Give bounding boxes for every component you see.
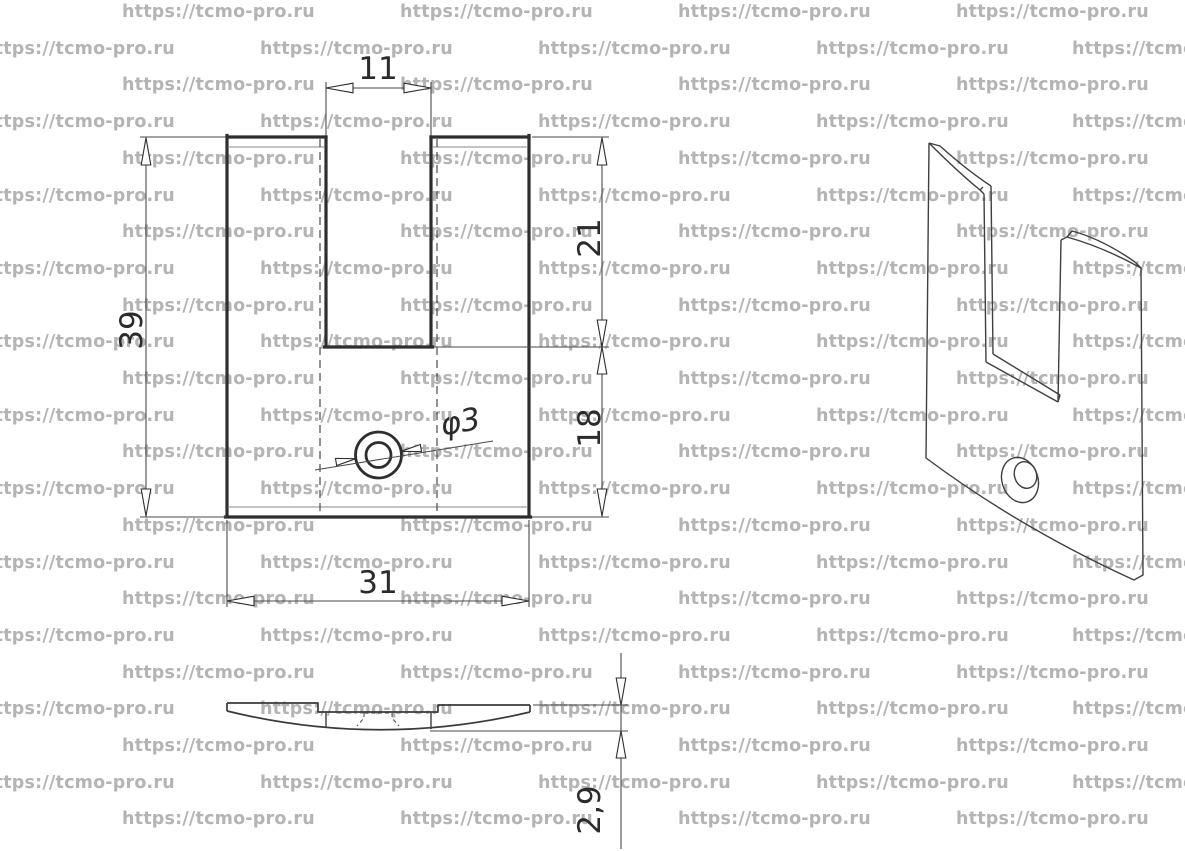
dim-21-arrow-bottom — [597, 320, 607, 347]
dim-39-lines — [140, 137, 226, 517]
dim-39-arrow-top — [141, 138, 151, 165]
dim-29-arrow-top — [616, 678, 626, 705]
dim-31-arrow-left — [227, 596, 254, 606]
dim-overall-width-label: 31 — [358, 565, 397, 601]
dim-18-arrow-top — [597, 347, 607, 374]
iso-hole-ellipse — [1011, 459, 1040, 491]
bottom-view-top-edges — [227, 703, 530, 712]
front-view — [226, 136, 531, 518]
dim-21-arrow-top — [597, 138, 607, 165]
dim-thickness-label: 2,9 — [572, 785, 608, 834]
curvature-edge-lines — [229, 147, 527, 507]
dim-18-arrow-bottom — [597, 489, 607, 516]
iso-right-arm-top — [1061, 231, 1141, 268]
bottom-view-slot-walls — [326, 712, 431, 729]
dim-slot-depth-label: 21 — [572, 218, 608, 257]
isometric-view — [926, 143, 1143, 580]
dim-11-arrow-left — [326, 83, 353, 93]
dim-31-arrow-right — [502, 596, 529, 606]
countersink-circle — [356, 432, 402, 478]
bottom-view-hidden-hole — [357, 713, 399, 726]
technical-drawing: 11 39 21 18 31 φ3 2,9 — [0, 0, 1185, 851]
bottom-view — [227, 703, 530, 730]
iso-outer-contour — [926, 143, 1143, 580]
dim-overall-height-label: 39 — [114, 310, 150, 349]
dim-slot-width-label: 11 — [358, 51, 397, 87]
bottom-view-curve — [227, 711, 530, 730]
hole-leader-line — [315, 441, 493, 470]
drawing-page: https://tcmo-pro.ruhttps://tcmo-pro.ruht… — [0, 0, 1185, 851]
dim-29-arrow-bottom — [616, 731, 626, 758]
dim-below-slot-label: 18 — [572, 408, 608, 447]
hole-circle — [366, 443, 391, 468]
dim-39-arrow-bottom — [141, 489, 151, 516]
dim-11-arrow-right — [404, 83, 431, 93]
iso-slot-edges — [984, 186, 1061, 402]
dim-21-18-lines — [434, 137, 609, 517]
iso-left-arm-top — [929, 143, 991, 194]
slot-edges — [325, 137, 433, 347]
dim-hole-diameter-label: φ3 — [437, 401, 483, 443]
